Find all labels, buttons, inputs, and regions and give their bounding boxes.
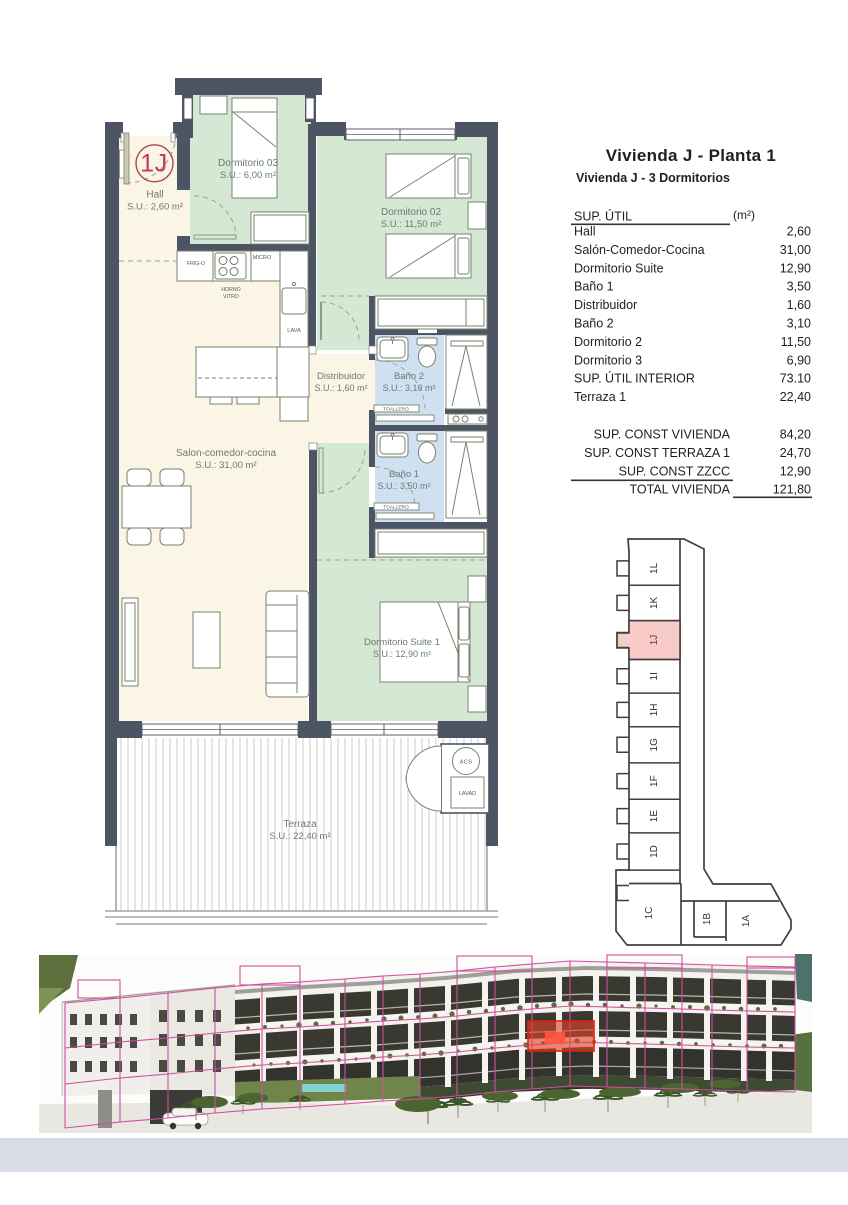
svg-text:Dormitorio 2: Dormitorio 2 [574,335,642,349]
svg-text:31,00: 31,00 [780,243,811,257]
svg-text:12,90: 12,90 [780,464,811,478]
svg-text:1I: 1I [649,672,660,680]
svg-text:Salón-Comedor-Cocina: Salón-Comedor-Cocina [574,243,705,257]
svg-text:Distribuidor: Distribuidor [574,298,637,312]
svg-text:S.U.: 11,50 m²: S.U.: 11,50 m² [381,219,442,230]
svg-text:S.U.: 12,90 m²: S.U.: 12,90 m² [373,649,431,659]
svg-text:FRIG-O: FRIG-O [187,261,205,267]
svg-text:Baño 2: Baño 2 [574,317,614,331]
svg-text:12,90: 12,90 [780,261,811,275]
svg-text:Hall: Hall [146,190,163,201]
svg-text:LAVAD: LAVAD [459,791,476,797]
svg-text:SUP. CONST ZZCC: SUP. CONST ZZCC [619,464,730,478]
svg-text:Baño 1: Baño 1 [389,469,419,480]
svg-text:SUP. CONST TERRAZA 1: SUP. CONST TERRAZA 1 [584,446,730,460]
svg-text:1J: 1J [649,635,660,646]
svg-text:Dormitorio 3: Dormitorio 3 [574,353,642,367]
svg-text:Vivienda J - Planta 1: Vivienda J - Planta 1 [606,146,776,165]
svg-text:S.U.: 6,00 m²: S.U.: 6,00 m² [220,170,276,181]
svg-text:1A: 1A [741,915,752,928]
svg-text:Dormitorio 02: Dormitorio 02 [381,207,441,218]
svg-text:S.U.: 2,60 m²: S.U.: 2,60 m² [127,202,183,213]
svg-text:1H: 1H [649,704,660,717]
svg-text:S.U.: 1,60 m²: S.U.: 1,60 m² [314,383,367,393]
svg-text:1B: 1B [702,913,713,926]
svg-text:11,50: 11,50 [781,335,811,349]
svg-text:1L: 1L [649,562,660,574]
svg-text:S.U.: 22,40 m²: S.U.: 22,40 m² [269,831,330,842]
svg-text:TOALLERO: TOALLERO [383,407,409,413]
svg-text:Dormitorio 03: Dormitorio 03 [218,158,278,169]
svg-text:73.10: 73.10 [780,372,811,386]
svg-text:(m²): (m²) [733,208,755,222]
svg-text:S.U.: 3,50 m²: S.U.: 3,50 m² [377,481,430,491]
svg-text:Baño 1: Baño 1 [574,280,614,294]
svg-text:SUP. ÚTIL INTERIOR: SUP. ÚTIL INTERIOR [574,371,695,386]
svg-text:1D: 1D [649,845,660,858]
svg-text:84,20: 84,20 [780,428,811,442]
svg-text:3,50: 3,50 [787,280,811,294]
svg-text:ACS: ACS [460,760,473,766]
svg-text:S.U.: 31,00 m²: S.U.: 31,00 m² [195,460,256,471]
svg-text:LAVA: LAVA [287,328,301,334]
svg-text:1E: 1E [649,810,660,823]
svg-text:3,10: 3,10 [787,317,811,331]
svg-text:S.U.: 3,10 m²: S.U.: 3,10 m² [382,383,435,393]
svg-text:1,60: 1,60 [787,298,811,312]
svg-text:6,90: 6,90 [787,353,811,367]
svg-text:121,80: 121,80 [773,483,811,497]
svg-text:22,40: 22,40 [780,390,811,404]
svg-text:TOTAL VIVIENDA: TOTAL VIVIENDA [630,483,731,497]
svg-text:VITRO: VITRO [223,294,239,300]
svg-text:Dormitorio Suite 1: Dormitorio Suite 1 [364,637,440,648]
svg-text:SUP. ÚTIL: SUP. ÚTIL [574,209,632,224]
svg-text:HORNO: HORNO [221,287,240,293]
svg-text:24,70: 24,70 [780,446,811,460]
svg-text:1C: 1C [644,907,655,920]
svg-text:Dormitorio Suite: Dormitorio Suite [574,261,664,275]
svg-text:Terraza 1: Terraza 1 [574,390,626,404]
svg-text:Terraza: Terraza [283,819,317,830]
svg-text:1K: 1K [649,596,660,609]
svg-text:2,60: 2,60 [787,225,811,239]
svg-text:MICRO: MICRO [253,255,272,261]
svg-text:Vivienda J - 3 Dormitorios: Vivienda J - 3 Dormitorios [576,171,730,185]
svg-text:Distribuidor: Distribuidor [317,371,365,382]
svg-text:Baño 2: Baño 2 [394,371,424,382]
svg-text:TOALLERO: TOALLERO [383,505,409,511]
svg-text:SUP. CONST VIVIENDA: SUP. CONST VIVIENDA [594,428,731,442]
svg-text:1F: 1F [649,775,660,787]
svg-text:Salon-comedor-cocina: Salon-comedor-cocina [176,448,276,459]
svg-text:Hall: Hall [574,225,596,239]
svg-text:1J: 1J [140,150,167,178]
svg-text:1G: 1G [649,738,660,752]
